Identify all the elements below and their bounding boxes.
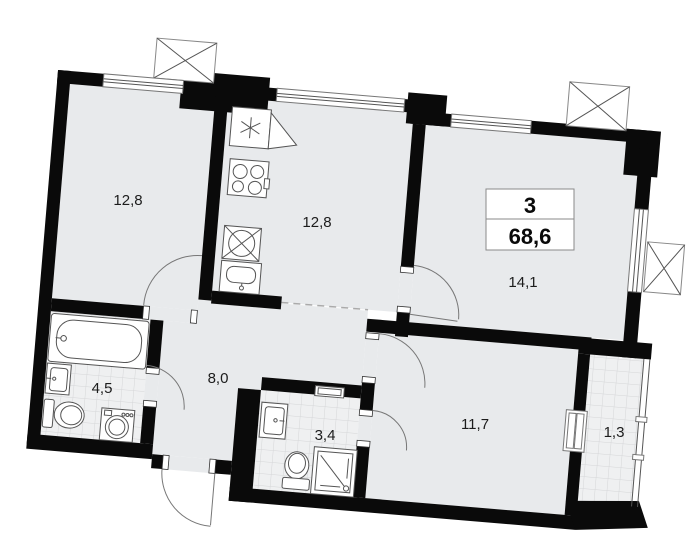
summary-total-area: 68,6 bbox=[509, 224, 552, 249]
label-balcony: 1,3 bbox=[604, 424, 625, 441]
washing-machine-icon bbox=[99, 408, 135, 443]
wall-step-pylon bbox=[406, 92, 447, 126]
wall-balcony-bottom-slant bbox=[563, 495, 650, 536]
label-bedroom: 11,7 bbox=[461, 416, 489, 433]
vent-shaft-icon bbox=[566, 82, 629, 131]
wall-entrance-b bbox=[215, 460, 232, 475]
label-shower-room: 3,4 bbox=[315, 427, 336, 444]
washbasin-icon bbox=[45, 363, 71, 395]
base-cabinet-sink-icon bbox=[219, 260, 261, 294]
summary-box: 3 68,6 bbox=[486, 189, 574, 250]
kitchen-sink-icon bbox=[222, 225, 262, 261]
door-leaf-entrance bbox=[210, 473, 214, 525]
label-hallway: 8,0 bbox=[208, 370, 229, 387]
floor-plan-page: 12,8 12,8 14,1 4,5 8,0 3,4 11,7 1,3 3 68… bbox=[0, 0, 698, 548]
radiator-icon bbox=[315, 386, 345, 398]
washbasin-icon bbox=[259, 402, 288, 439]
label-bathroom: 4,5 bbox=[92, 380, 113, 397]
bathtub-icon bbox=[48, 313, 150, 369]
label-kitchen-living: 12,8 bbox=[302, 214, 331, 231]
plan-geometry bbox=[21, 30, 698, 548]
door-entrance bbox=[158, 469, 215, 526]
vent-shaft-icon bbox=[154, 38, 217, 83]
wall-bedroom-left-a bbox=[360, 382, 375, 410]
wall-entrance-a bbox=[151, 454, 163, 469]
floor-plan-svg: 12,8 12,8 14,1 4,5 8,0 3,4 11,7 1,3 3 68… bbox=[0, 0, 698, 548]
window-balcony-divider bbox=[563, 410, 587, 453]
label-bedroom-large: 14,1 bbox=[508, 274, 537, 291]
summary-rooms-count: 3 bbox=[524, 193, 536, 218]
stove-icon bbox=[227, 159, 271, 198]
vent-shaft-icon bbox=[644, 242, 685, 295]
shower-cabin-icon bbox=[310, 447, 357, 497]
label-living-room: 12,8 bbox=[113, 192, 142, 209]
